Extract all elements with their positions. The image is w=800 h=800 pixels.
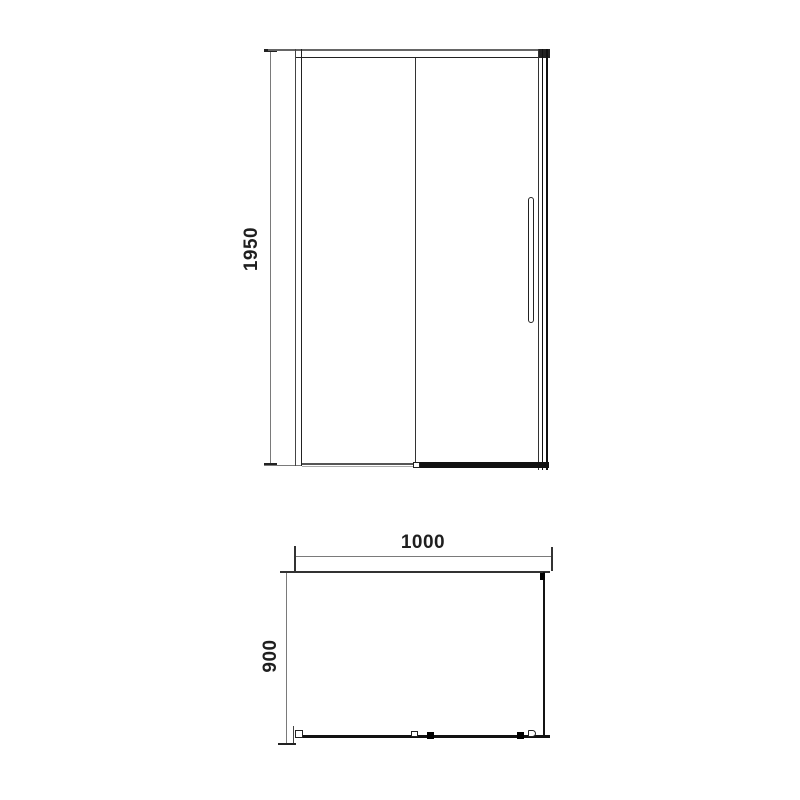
drawing-canvas: 1950 1000 900 — [0, 0, 800, 800]
depth-dim-line — [286, 573, 287, 744]
plan-roller-block-right — [517, 732, 524, 739]
plan-back-edge-line — [280, 571, 550, 573]
top-right-corner-block — [538, 49, 550, 58]
height-dimension-label: 1950 — [241, 227, 263, 271]
plan-wall-profile-left — [295, 730, 303, 738]
right-profile-line-mid — [542, 49, 544, 470]
width-dim-line — [295, 556, 552, 557]
depth-dim-ext-bottom — [293, 726, 294, 744]
bottom-sill-line-shadow — [302, 466, 414, 467]
left-wall-profile-line-outer — [295, 49, 296, 466]
depth-dim-tick-bottom — [278, 743, 296, 745]
left-wall-profile-line-inner — [301, 49, 303, 466]
right-profile-line-outer — [546, 49, 548, 470]
height-dim-line — [270, 51, 271, 463]
width-dim-ext-right — [551, 547, 553, 571]
right-profile-line-inner — [538, 49, 539, 470]
door-bottom-guide-block — [413, 462, 420, 468]
plan-side-panel-top-tick — [540, 573, 546, 580]
plan-door-edge-profile — [411, 731, 418, 738]
width-dimension-label: 1000 — [401, 532, 445, 554]
height-dim-tick-bottom — [264, 463, 277, 465]
width-dim-ext-left — [294, 546, 296, 573]
depth-dimension-label: 900 — [260, 639, 282, 672]
door-handle — [528, 197, 534, 323]
plan-roller-block-left — [427, 732, 434, 739]
plan-side-panel-edge — [543, 572, 545, 738]
door-bottom-rail-bar — [413, 462, 549, 468]
door-leading-edge-line — [415, 58, 416, 464]
top-rail-line-outer — [268, 49, 550, 51]
top-rail-line-inner — [295, 57, 550, 58]
